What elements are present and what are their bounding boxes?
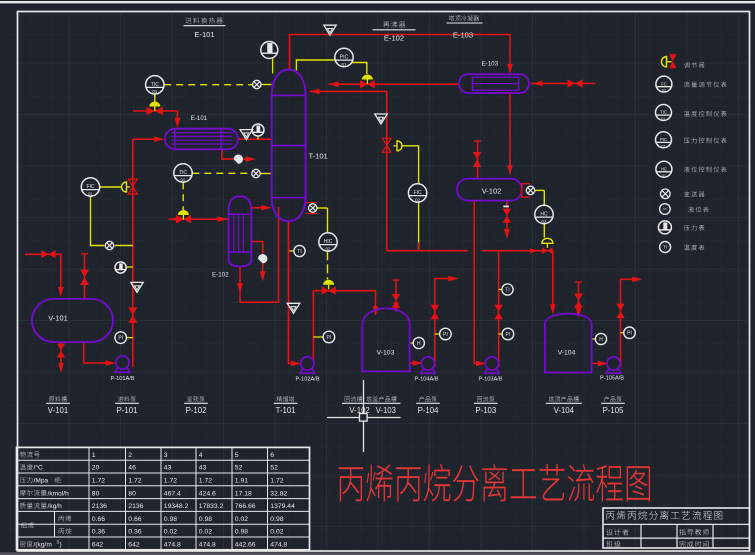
svg-text:FIC: FIC: [414, 190, 422, 196]
svg-text:1.72: 1.72: [270, 478, 283, 485]
svg-text:467.4: 467.4: [164, 490, 181, 497]
svg-text:E-103: E-103: [453, 31, 473, 40]
svg-text:1.72: 1.72: [92, 478, 105, 485]
svg-text:E-102: E-102: [384, 34, 404, 43]
svg-text:H: H: [599, 337, 603, 343]
svg-text:T-101: T-101: [276, 406, 296, 415]
svg-text:46: 46: [128, 465, 136, 472]
svg-text:474.8: 474.8: [199, 542, 216, 549]
svg-text:P-102A/B: P-102A/B: [296, 377, 320, 383]
svg-text:/Mpa: /Mpa: [34, 478, 49, 485]
svg-text:52: 52: [270, 465, 278, 472]
svg-text:V-104: V-104: [554, 406, 575, 415]
svg-text:474.8: 474.8: [164, 542, 181, 549]
svg-text:2136: 2136: [92, 503, 107, 510]
svg-text:PI: PI: [327, 335, 332, 341]
svg-text:P-105: P-105: [603, 406, 624, 415]
svg-text:80: 80: [128, 490, 136, 497]
svg-text:TIC: TIC: [660, 110, 667, 115]
svg-text:2136: 2136: [128, 503, 143, 510]
svg-text:H: H: [417, 341, 421, 347]
svg-text:): ): [60, 542, 62, 549]
svg-text:PI: PI: [506, 332, 511, 338]
svg-text:642: 642: [128, 542, 140, 549]
svg-text:P-104A/B: P-104A/B: [415, 377, 439, 383]
svg-text:TI: TI: [297, 249, 301, 255]
svg-text:424.6: 424.6: [199, 490, 216, 497]
svg-text:TI: TI: [663, 245, 667, 250]
svg-text:2: 2: [128, 452, 132, 459]
svg-text:V-101: V-101: [48, 406, 68, 415]
svg-text:0.98: 0.98: [270, 516, 283, 523]
svg-text:1.91: 1.91: [235, 478, 248, 485]
svg-text:PIC: PIC: [340, 55, 349, 61]
svg-text:V-101: V-101: [48, 314, 68, 323]
svg-text:1.72: 1.72: [199, 478, 212, 485]
svg-text:P-103A/B: P-103A/B: [479, 377, 503, 383]
svg-text:TI: TI: [505, 287, 509, 293]
svg-text:P-101A/B: P-101A/B: [111, 376, 135, 382]
svg-text:/(kg/m: /(kg/m: [34, 542, 53, 549]
svg-text:1.72: 1.72: [164, 478, 177, 485]
svg-text:01: 01: [661, 116, 666, 121]
svg-text:TIC: TIC: [151, 82, 159, 88]
svg-text:02: 02: [542, 219, 547, 224]
svg-text:PI: PI: [627, 331, 632, 337]
svg-text:TIC: TIC: [179, 170, 187, 176]
svg-text:PI: PI: [118, 335, 123, 341]
svg-text:43: 43: [164, 465, 172, 472]
svg-text:17833.2: 17833.2: [199, 503, 224, 510]
svg-text:4: 4: [199, 452, 203, 459]
svg-text:HC: HC: [540, 212, 548, 218]
svg-text:0.66: 0.66: [128, 516, 141, 523]
svg-text:01: 01: [152, 89, 157, 94]
svg-text:V-102: V-102: [482, 186, 502, 195]
svg-text:P-105A/B: P-105A/B: [600, 376, 624, 382]
svg-text:FIC: FIC: [86, 184, 94, 190]
svg-text:PI: PI: [443, 332, 448, 338]
svg-text:32.82: 32.82: [270, 490, 287, 497]
svg-text:0.98: 0.98: [164, 516, 177, 523]
svg-text:0.02: 0.02: [235, 516, 248, 523]
svg-text:HC: HC: [661, 166, 667, 171]
svg-text:0.98: 0.98: [235, 529, 248, 536]
svg-text:E-101: E-101: [194, 30, 214, 39]
svg-text:V-104: V-104: [558, 350, 576, 357]
svg-text:3: 3: [164, 452, 168, 459]
svg-text:0.02: 0.02: [164, 529, 177, 536]
svg-text:0.36: 0.36: [128, 529, 141, 536]
svg-text:1.72: 1.72: [128, 478, 141, 485]
svg-text:HIC: HIC: [324, 239, 333, 245]
svg-text:V-103: V-103: [377, 350, 395, 357]
svg-text:1: 1: [92, 452, 96, 459]
svg-text:01: 01: [88, 191, 93, 196]
svg-text:P-101: P-101: [117, 406, 138, 415]
svg-text:01: 01: [661, 143, 666, 148]
svg-text:P-104: P-104: [418, 406, 439, 415]
svg-text:80: 80: [92, 490, 100, 497]
svg-text:02: 02: [415, 197, 420, 202]
svg-text:6: 6: [270, 452, 274, 459]
svg-text:V-103: V-103: [376, 406, 396, 415]
svg-text:/kmol/h: /kmol/h: [48, 490, 70, 497]
svg-text:642: 642: [92, 542, 104, 549]
svg-text:PIC: PIC: [660, 137, 667, 142]
svg-text:01: 01: [342, 62, 347, 67]
svg-text:766.66: 766.66: [235, 503, 256, 510]
svg-text:E-101: E-101: [191, 115, 208, 122]
svg-text:T-101: T-101: [309, 152, 328, 161]
svg-text:P-102: P-102: [186, 406, 207, 415]
svg-text:01: 01: [662, 173, 667, 178]
svg-text:0.98: 0.98: [199, 516, 212, 523]
svg-text:E-102: E-102: [212, 272, 229, 279]
svg-text:01: 01: [662, 88, 667, 93]
svg-text:0.36: 0.36: [92, 529, 105, 536]
svg-text:/°C: /°C: [34, 464, 43, 472]
svg-text:17.18: 17.18: [235, 490, 252, 497]
svg-text:474.8: 474.8: [270, 542, 287, 549]
svg-text:02: 02: [326, 246, 331, 251]
svg-text:P-103: P-103: [475, 406, 496, 415]
svg-text:19348.2: 19348.2: [164, 503, 189, 510]
svg-text:20: 20: [92, 465, 100, 472]
svg-text:0.02: 0.02: [270, 529, 283, 536]
svg-text:43: 43: [199, 465, 207, 472]
svg-text:1379.44: 1379.44: [270, 503, 295, 510]
svg-text:H: H: [663, 207, 666, 212]
svg-text:/kg/h: /kg/h: [48, 503, 63, 510]
svg-text:E-103: E-103: [482, 61, 499, 68]
svg-text:442.66: 442.66: [235, 542, 256, 549]
svg-text:02: 02: [181, 177, 186, 182]
svg-text:FC: FC: [661, 81, 667, 86]
svg-text:0.02: 0.02: [199, 529, 212, 536]
svg-text:0.66: 0.66: [92, 516, 105, 523]
svg-text:52: 52: [235, 465, 243, 472]
svg-text:5: 5: [235, 452, 239, 459]
